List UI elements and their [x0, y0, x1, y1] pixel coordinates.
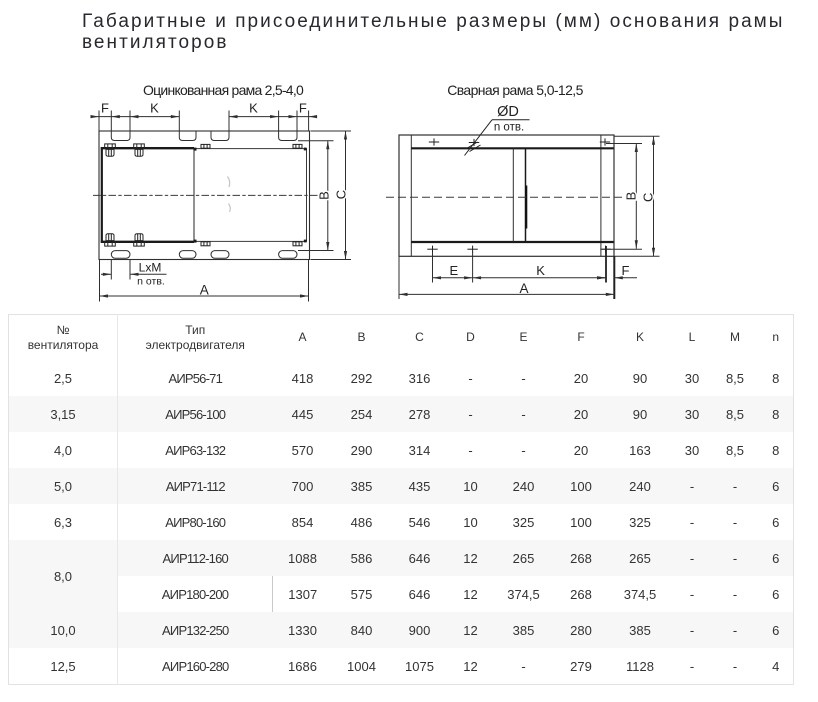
svg-text:n отв.: n отв. [494, 122, 524, 134]
svg-text:C: C [334, 190, 349, 199]
svg-text:Сварная рама 5,0-12,5: Сварная рама 5,0-12,5 [447, 82, 583, 98]
svg-text:ØD: ØD [497, 104, 519, 120]
svg-text:F: F [101, 101, 109, 116]
svg-text:K: K [249, 101, 258, 116]
svg-text:n отв.: n отв. [137, 275, 165, 287]
svg-text:B: B [624, 192, 639, 201]
svg-text:F: F [299, 101, 307, 116]
svg-text:K: K [536, 263, 545, 278]
svg-text:E: E [449, 263, 458, 278]
svg-text:LxM: LxM [139, 260, 162, 274]
svg-text:A: A [519, 281, 528, 296]
svg-text:Оцинкованная рама 2,5-4,0: Оцинкованная рама 2,5-4,0 [143, 82, 304, 98]
svg-text:K: K [150, 101, 159, 116]
svg-text:B: B [317, 191, 332, 200]
svg-text:F: F [622, 263, 630, 278]
svg-text:C: C [641, 193, 656, 202]
svg-text:A: A [200, 283, 209, 298]
